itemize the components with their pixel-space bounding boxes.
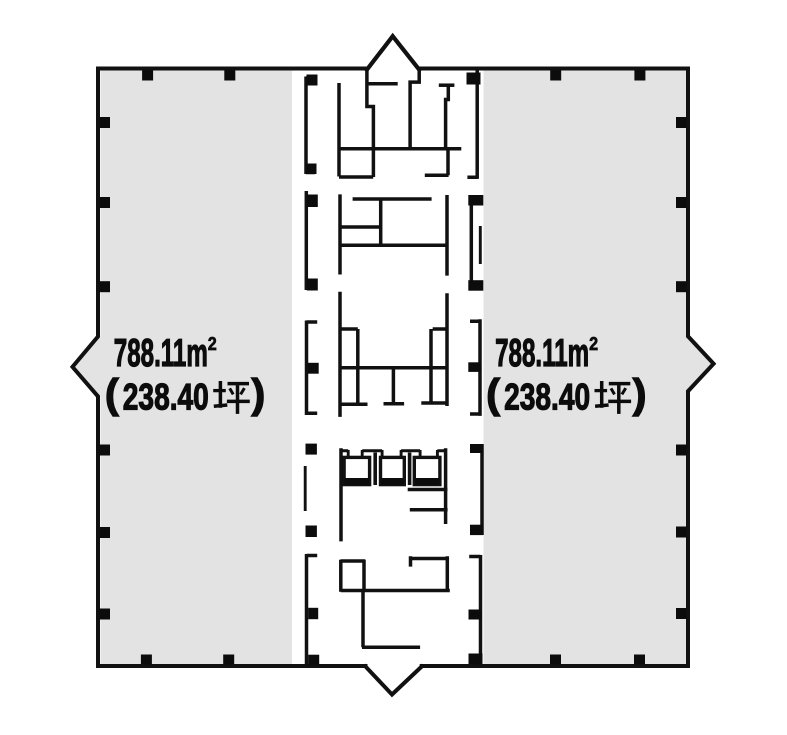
svg-text:(: (	[486, 371, 500, 417]
svg-text:2: 2	[589, 334, 598, 354]
svg-text:238.40: 238.40	[123, 376, 209, 417]
svg-text:238.40: 238.40	[504, 376, 590, 417]
svg-text:): )	[252, 371, 266, 417]
svg-text:(: (	[105, 371, 119, 417]
svg-text:788.11m: 788.11m	[495, 332, 589, 375]
svg-text:): )	[633, 371, 647, 417]
svg-text:788.11m: 788.11m	[114, 332, 208, 375]
svg-text:2: 2	[208, 334, 217, 354]
